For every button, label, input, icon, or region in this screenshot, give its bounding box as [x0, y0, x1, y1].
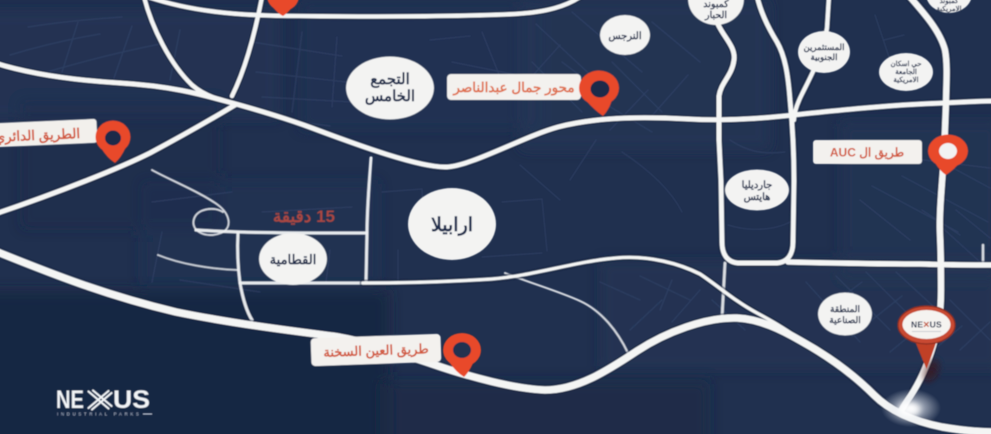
svg-text:هايتس: هايتس: [744, 192, 771, 203]
svg-text:الجنوبية: الجنوبية: [811, 52, 838, 63]
svg-text:15 دقيقة: 15 دقيقة: [273, 207, 335, 226]
svg-text:كمبوند: كمبوند: [940, 0, 959, 5]
svg-text:المنطقة: المنطقة: [830, 304, 860, 314]
svg-text:النرجس: النرجس: [608, 31, 642, 42]
svg-text:حي اسكان: حي اسكان: [890, 60, 921, 69]
svg-text:NE✕US: NE✕US: [911, 320, 942, 330]
svg-text:الجامعة: الجامعة: [895, 68, 917, 76]
svg-text:ارابيلا: ارابيلا: [431, 215, 473, 236]
svg-text:الامريكية: الامريكية: [893, 76, 918, 84]
svg-text:طريق ال AUC: طريق ال AUC: [830, 146, 904, 161]
svg-text:INDUSTRIAL PARKS: INDUSTRIAL PARKS: [57, 412, 142, 417]
svg-text:جارديليا: جارديليا: [742, 180, 773, 191]
svg-text:محور جمال عبدالناصر: محور جمال عبدالناصر: [452, 80, 574, 96]
svg-text:الخامس: الخامس: [365, 88, 415, 105]
svg-text:الامريكية: الامريكية: [936, 5, 961, 13]
svg-text:الحبار: الحبار: [704, 10, 727, 21]
svg-text:الصناعية: الصناعية: [829, 315, 860, 325]
svg-text:US: US: [113, 386, 150, 414]
svg-text:كمبوند: كمبوند: [703, 0, 729, 10]
svg-text:التجمع: التجمع: [370, 71, 410, 88]
svg-text:NE: NE: [56, 386, 84, 414]
svg-text:القطامية: القطامية: [270, 252, 317, 267]
